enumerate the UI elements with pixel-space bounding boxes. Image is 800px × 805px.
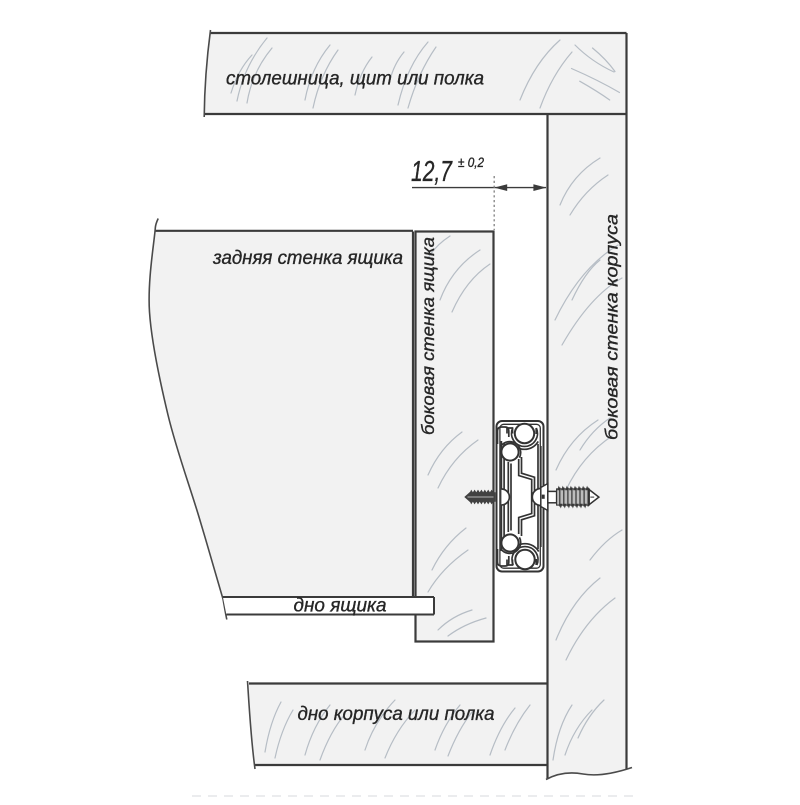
svg-text:задняя стенка ящика: задняя стенка ящика xyxy=(212,248,403,269)
svg-text:дно корпуса или полка: дно корпуса или полка xyxy=(298,704,495,725)
svg-text:± 0,2: ± 0,2 xyxy=(458,155,484,170)
svg-text:боковая стенка ящика: боковая стенка ящика xyxy=(418,237,438,435)
svg-text:боковая стенка корпуса: боковая стенка корпуса xyxy=(602,214,622,440)
svg-text:12,7: 12,7 xyxy=(411,156,453,188)
svg-text:столешница, щит или полка: столешница, щит или полка xyxy=(226,69,484,90)
svg-text:дно ящика: дно ящика xyxy=(294,596,387,617)
